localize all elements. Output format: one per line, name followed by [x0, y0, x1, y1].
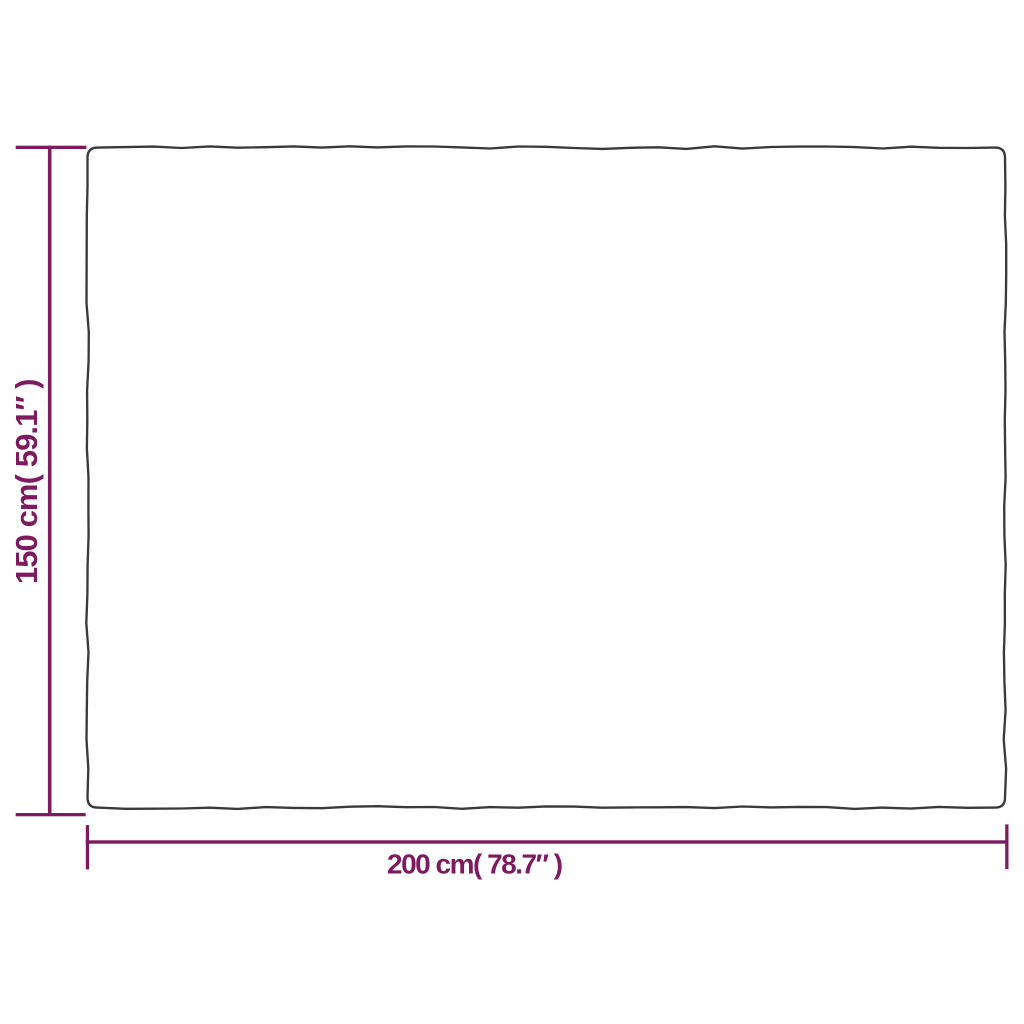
svg-text:200 cm( 78.7″ ): 200 cm( 78.7″ ) [387, 848, 562, 879]
svg-text:150 cm( 59.1″ ): 150 cm( 59.1″ ) [9, 379, 44, 584]
